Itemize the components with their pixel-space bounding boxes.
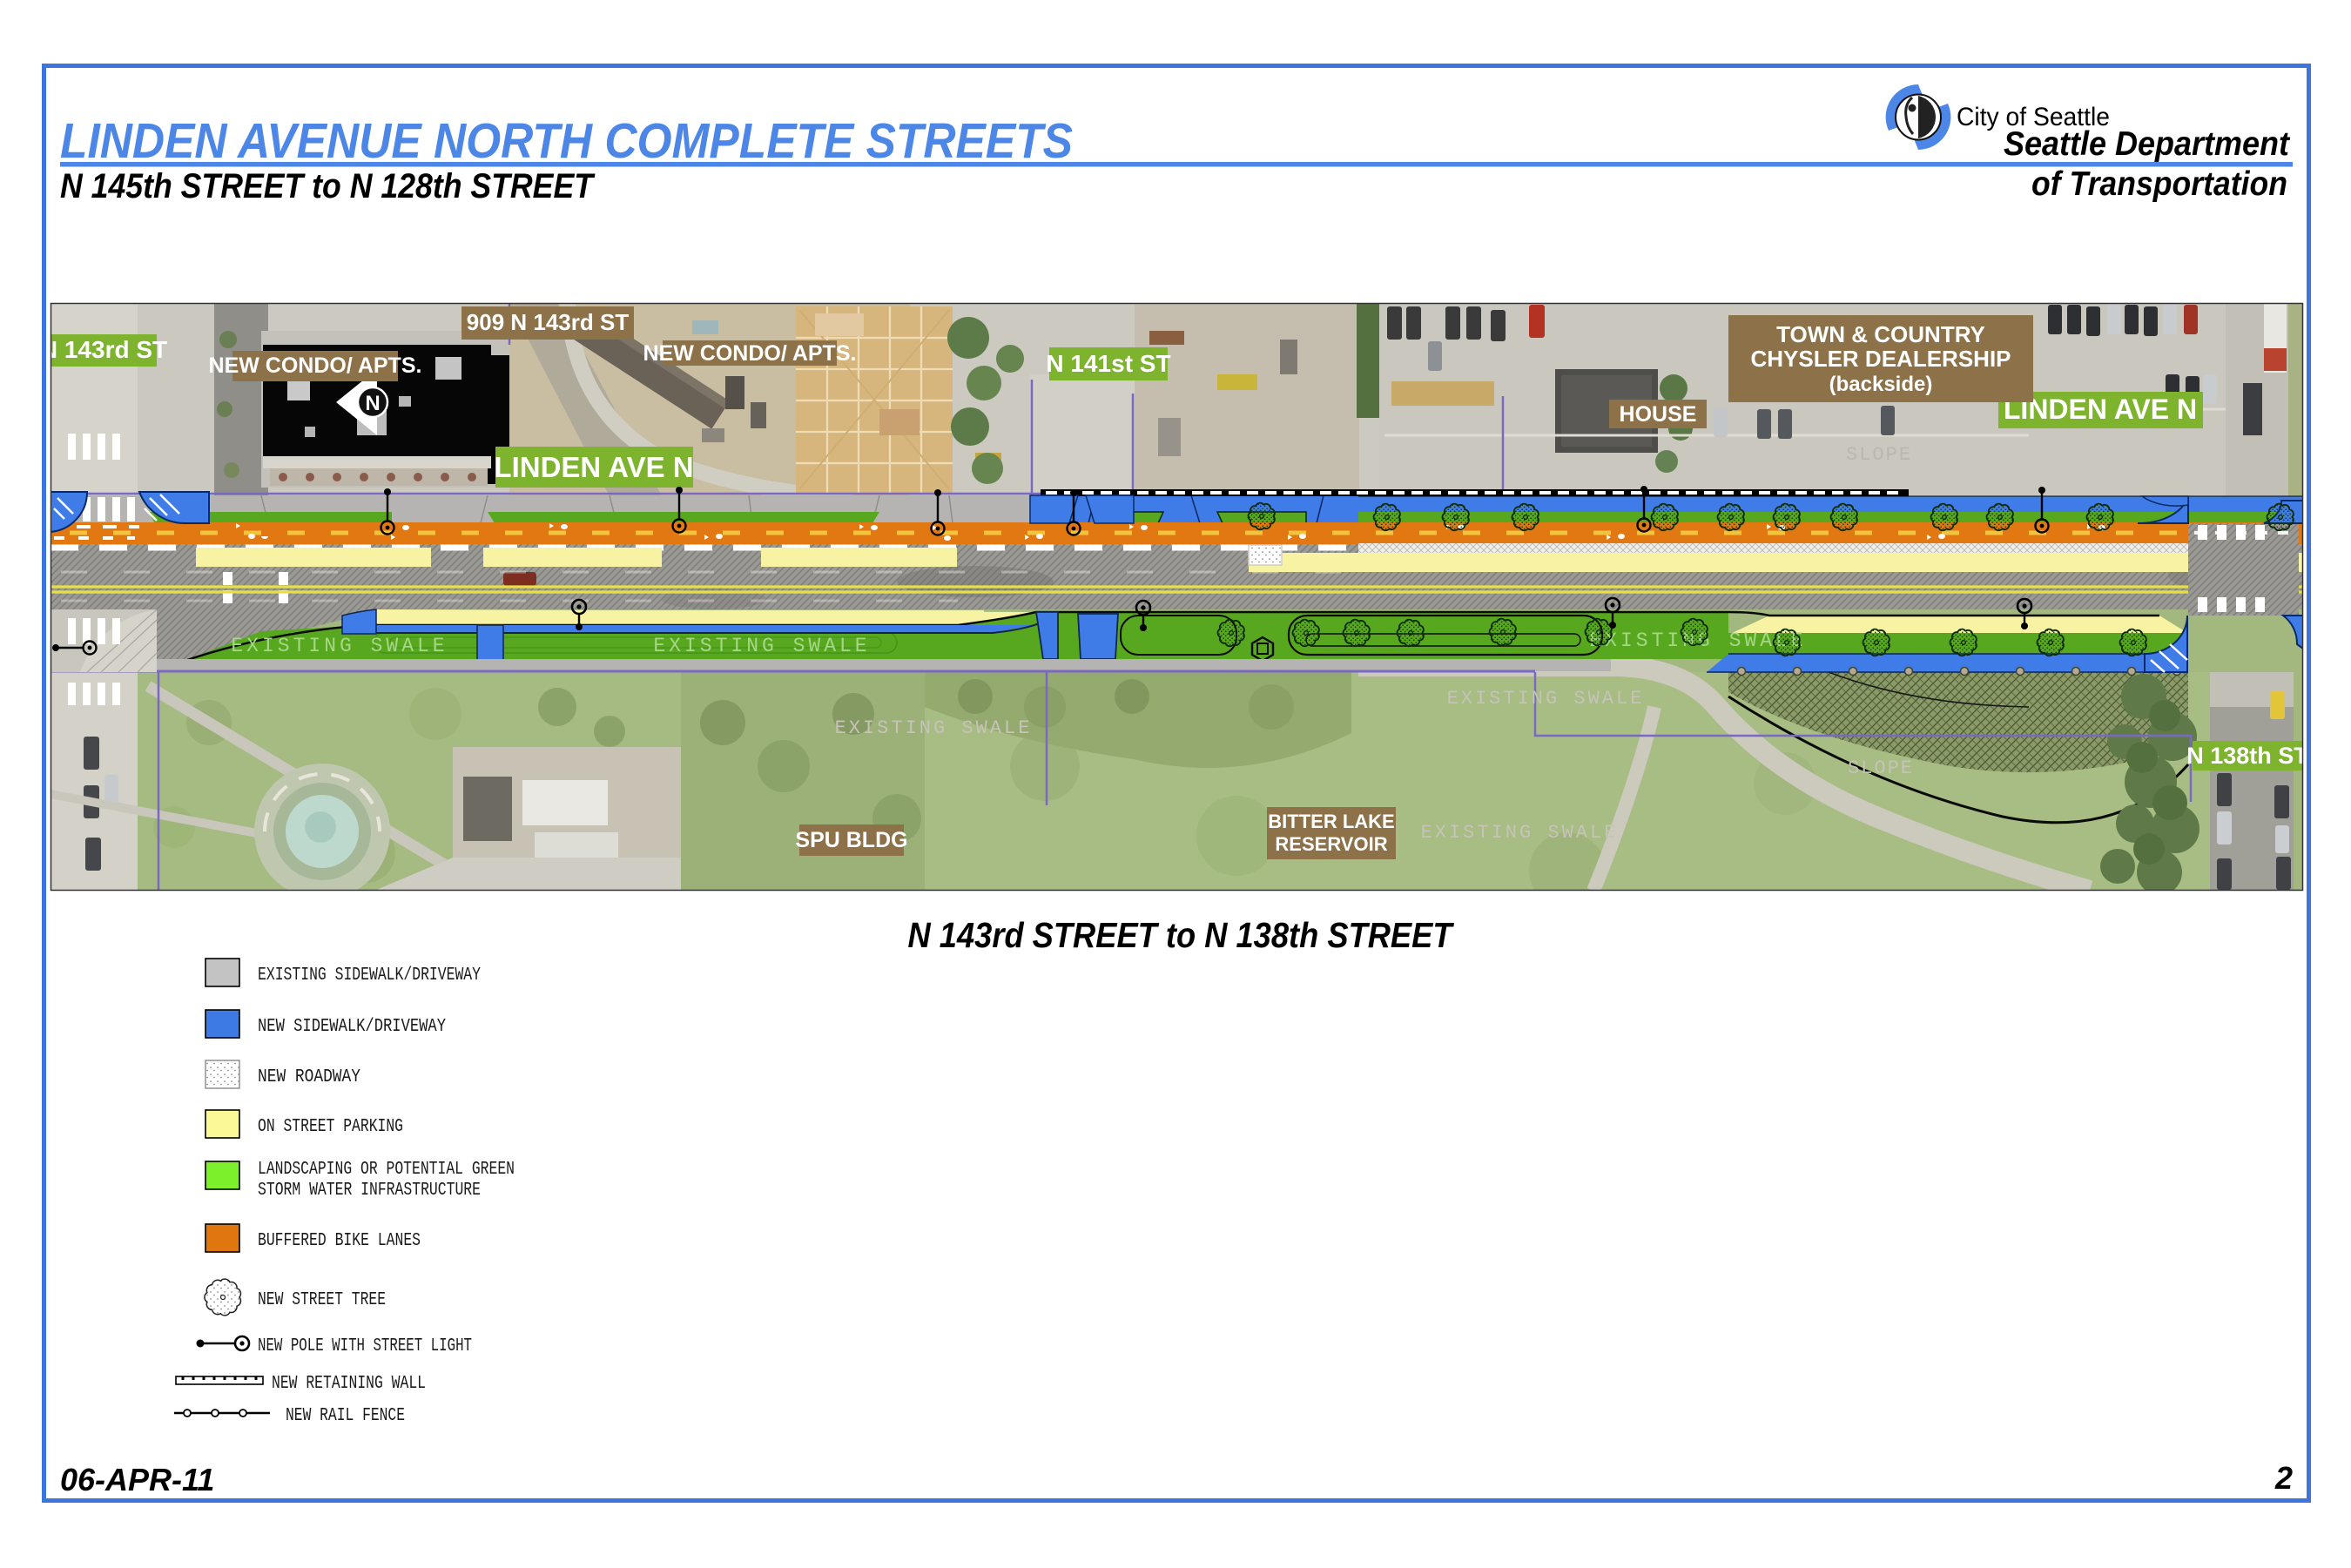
svg-text:N 138th ST: N 138th ST <box>2186 743 2308 769</box>
svg-text:NEW ROADWAY: NEW ROADWAY <box>258 1067 360 1087</box>
svg-text:STORM WATER INFRASTRUCTURE: STORM WATER INFRASTRUCTURE <box>258 1180 481 1201</box>
svg-text:HOUSE: HOUSE <box>1620 402 1697 427</box>
svg-text:909 N 143rd ST: 909 N 143rd ST <box>467 309 630 335</box>
svg-text:Seattle Department: Seattle Department <box>2004 125 2291 163</box>
svg-text:ON STREET PARKING: ON STREET PARKING <box>258 1116 403 1137</box>
svg-text:NEW RETAINING WALL: NEW RETAINING WALL <box>272 1373 426 1394</box>
svg-text:EXISTING SWALE: EXISTING SWALE <box>653 635 870 657</box>
svg-text:2: 2 <box>2274 1460 2293 1496</box>
svg-text:N 143rd ST: N 143rd ST <box>40 336 167 363</box>
svg-text:EXISTING SIDEWALK/DRIVEWAY: EXISTING SIDEWALK/DRIVEWAY <box>258 965 481 986</box>
svg-text:BITTER LAKE: BITTER LAKE <box>1268 811 1394 832</box>
svg-text:EXISTING SWALE: EXISTING SWALE <box>1447 688 1645 710</box>
svg-text:SLOPE: SLOPE <box>1846 444 1912 466</box>
svg-text:of Transportation: of Transportation <box>2031 165 2287 203</box>
svg-text:NEW RAIL FENCE: NEW RAIL FENCE <box>286 1405 405 1426</box>
svg-text:(backside): (backside) <box>1829 373 1933 396</box>
svg-text:RESERVOIR: RESERVOIR <box>1275 833 1387 855</box>
svg-text:N 145th STREET to N 128th STRE: N 145th STREET to N 128th STREET <box>60 167 596 205</box>
svg-text:LINDEN AVENUE NORTH COMPLETE S: LINDEN AVENUE NORTH COMPLETE STREETS <box>60 113 1073 169</box>
svg-text:N 143rd STREET to N 138th STRE: N 143rd STREET to N 138th STREET <box>908 915 1455 955</box>
svg-text:EXISTING SWALE: EXISTING SWALE <box>835 717 1033 739</box>
svg-text:EXISTING SWALE: EXISTING SWALE <box>231 635 448 657</box>
svg-text:CHYSLER DEALERSHIP: CHYSLER DEALERSHIP <box>1750 346 2011 372</box>
svg-text:NEW CONDO/ APTS.: NEW CONDO/ APTS. <box>209 353 422 378</box>
svg-text:NEW SIDEWALK/DRIVEWAY: NEW SIDEWALK/DRIVEWAY <box>258 1016 446 1037</box>
svg-text:N 141st ST: N 141st ST <box>1046 350 1170 377</box>
svg-text:SLOPE: SLOPE <box>1848 757 1914 779</box>
svg-text:NEW CONDO/ APTS.: NEW CONDO/ APTS. <box>643 341 857 366</box>
svg-text:EXISTING SWALE: EXISTING SWALE <box>1421 822 1619 844</box>
svg-text:BUFFERED BIKE LANES: BUFFERED BIKE LANES <box>258 1230 421 1251</box>
svg-text:NEW STREET TREE: NEW STREET TREE <box>258 1289 386 1310</box>
svg-text:06-APR-11: 06-APR-11 <box>60 1462 214 1497</box>
svg-text:TOWN & COUNTRY: TOWN & COUNTRY <box>1776 321 1985 347</box>
svg-text:SPU BLDG: SPU BLDG <box>795 828 907 852</box>
svg-text:NEW POLE WITH STREET LIGHT: NEW POLE WITH STREET LIGHT <box>258 1336 472 1356</box>
svg-text:N: N <box>365 392 380 415</box>
svg-text:LINDEN AVE N: LINDEN AVE N <box>494 451 693 483</box>
svg-text:LANDSCAPING OR POTENTIAL GREEN: LANDSCAPING OR POTENTIAL GREEN <box>258 1159 515 1180</box>
